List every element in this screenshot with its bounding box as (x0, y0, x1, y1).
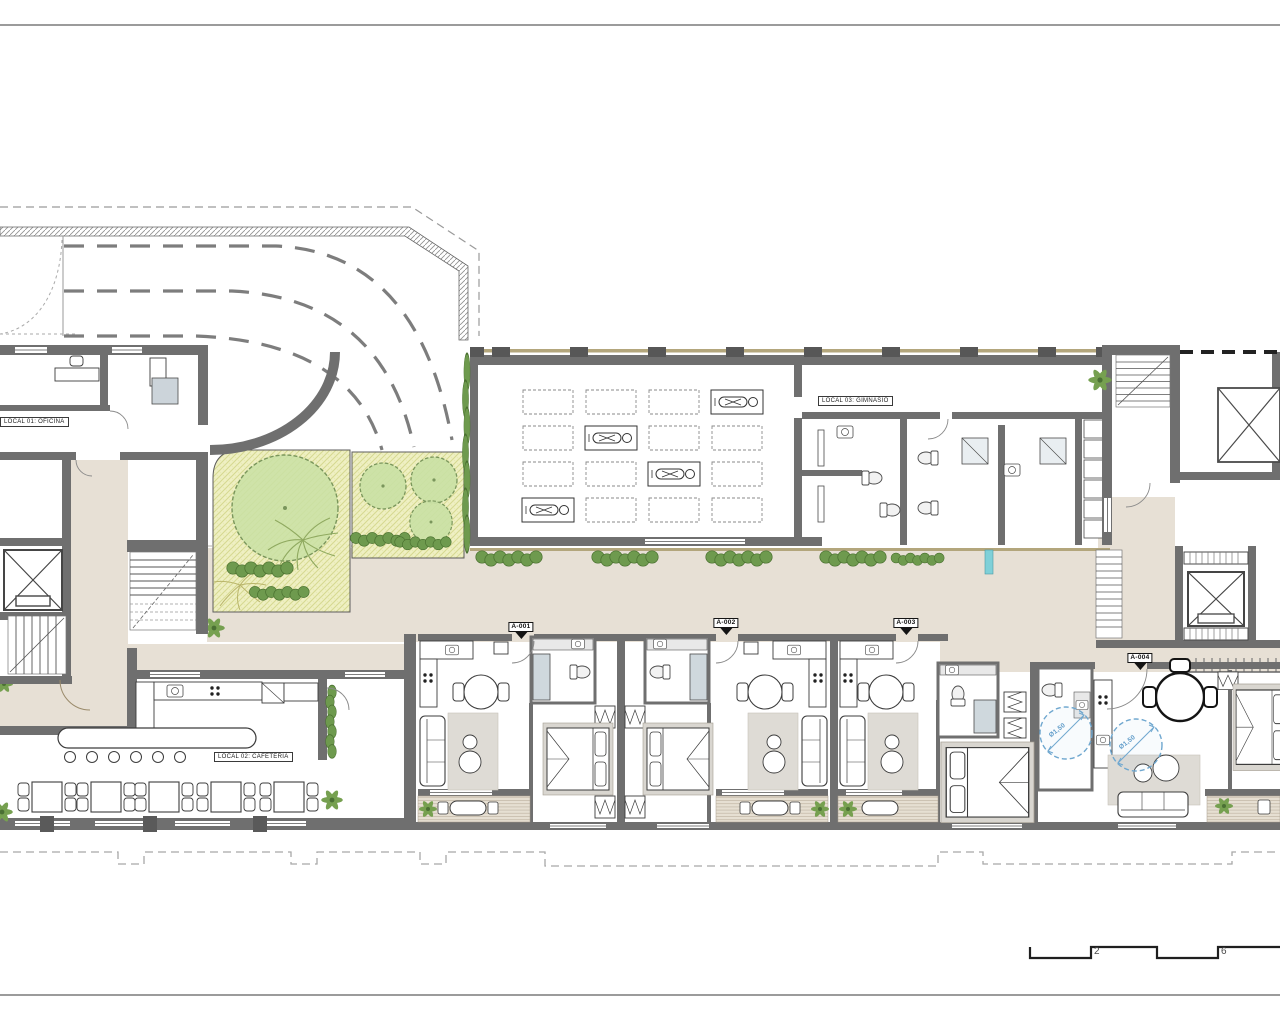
entrance-arrow-icon (720, 628, 732, 635)
round-table-icon (453, 675, 509, 709)
bed-icon (941, 742, 1034, 823)
label-local-02: LOCAL 02: CAFETERIA (214, 752, 293, 762)
unit-tag-a003: A-003 (893, 618, 918, 635)
entrance-arrow-icon (900, 628, 912, 635)
exercise-bench-icon (522, 498, 574, 522)
stairs-top-right-icon (1116, 355, 1170, 407)
label-local-03: LOCAL 03: GIMNASIO (818, 396, 893, 406)
bed-icon (1233, 684, 1280, 770)
bed-icon (543, 723, 613, 795)
unit-tag-a002: A-002 (713, 618, 738, 635)
site-boundary-dashed (0, 852, 1280, 866)
office-fixture (152, 378, 178, 404)
toilet-icon (880, 503, 900, 517)
wardrobe-icon (1004, 718, 1026, 738)
sofa-icon (1118, 792, 1188, 817)
sofa-icon (840, 716, 865, 786)
scale-tick-label: 6 (1221, 946, 1227, 957)
elevator-right-icon (1175, 546, 1256, 648)
unit-label: A-004 (1127, 653, 1152, 663)
office-chair (70, 356, 83, 366)
exercise-bench-icon (648, 462, 700, 486)
wardrobe-icon (1004, 692, 1026, 712)
office-desk (55, 368, 99, 381)
toilet-icon (918, 451, 938, 465)
exercise-bench-icon (711, 390, 763, 414)
hedge-icon (326, 685, 337, 758)
scale-bar-icon (1030, 947, 1280, 958)
tree-icon (360, 463, 406, 509)
dining-table-icon (77, 782, 135, 812)
stairs-bottom-right-icon (1096, 550, 1122, 638)
bed-icon (643, 723, 713, 795)
bench-seat (818, 486, 824, 522)
dining-table-icon (260, 782, 318, 812)
water-feature (985, 550, 993, 574)
entrance-arrow-icon (1134, 663, 1146, 670)
sofa-icon (420, 716, 445, 786)
wardrobe-icon (595, 796, 615, 818)
stairs-left-icon (8, 616, 66, 674)
toilet-icon (862, 471, 882, 485)
boundary-hatch-band (0, 227, 468, 340)
unit-label: A-003 (893, 618, 918, 628)
sofa-icon (802, 716, 827, 786)
wardrobe-icon (625, 706, 645, 728)
hedge-icon (462, 353, 470, 552)
bench-seat (818, 430, 824, 466)
driveway-area (0, 207, 479, 450)
gate-swing-arc (0, 240, 62, 334)
tree-icon (411, 457, 457, 503)
door-arc (110, 411, 128, 429)
floor-plan-drawing (0, 0, 1280, 1024)
unit-tag-a004: A-004 (1127, 653, 1152, 670)
kitchen-counters (136, 682, 318, 730)
dining-table-icon (135, 782, 193, 812)
dining-table-icon (197, 782, 255, 812)
wardrobe-icon (625, 796, 645, 818)
round-table-icon (858, 675, 914, 709)
architectural-floor-plan: LOCAL 01: OFICINA LOCAL 03: GIMNASIO LOC… (0, 0, 1280, 1024)
label-local-01: LOCAL 01: OFICINA (0, 417, 69, 427)
scale-tick-label: 2 (1094, 946, 1100, 957)
entrance-arrow-icon (515, 632, 527, 639)
unit-label: A-002 (713, 618, 738, 628)
unit-tag-a001: A-001 (508, 622, 533, 639)
plant-icon (321, 789, 343, 811)
unit-label: A-001 (508, 622, 533, 632)
s-sink-icon (1004, 464, 1020, 476)
toilet-icon (918, 501, 938, 515)
stairs-mid-icon (130, 552, 196, 630)
curved-wall (210, 352, 335, 450)
bar-stools (65, 752, 186, 763)
round-table-icon (737, 675, 793, 709)
dining-table-icon (18, 782, 76, 812)
gym-local-03 (462, 347, 1110, 553)
bar-counter (58, 728, 256, 748)
exercise-bench-icon (585, 426, 637, 450)
s-sink-icon (837, 426, 853, 438)
